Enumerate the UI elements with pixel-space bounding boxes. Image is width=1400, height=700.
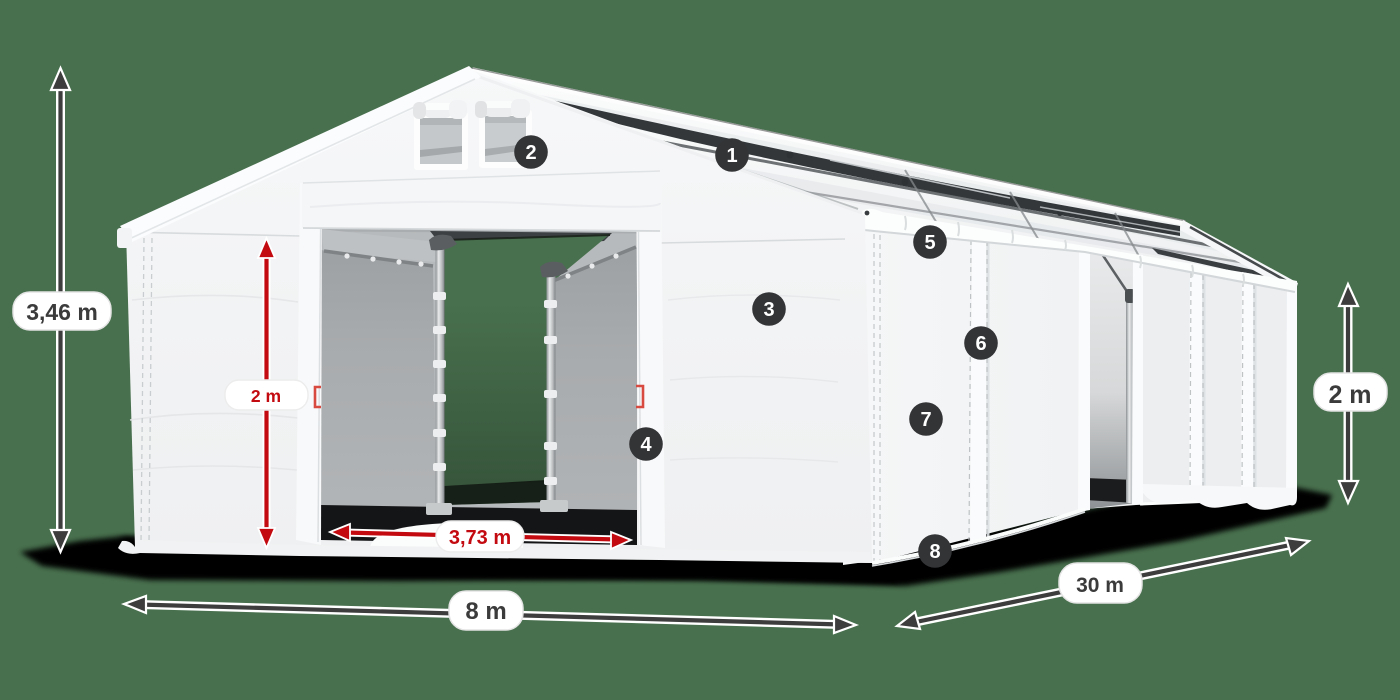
svg-text:6: 6 [975,333,986,355]
svg-text:3,46 m: 3,46 m [26,299,98,325]
svg-text:3,73 m: 3,73 m [449,527,511,549]
svg-text:1: 1 [726,145,737,167]
svg-text:4: 4 [640,434,652,456]
svg-text:8: 8 [929,541,940,563]
svg-text:2 m: 2 m [1328,381,1371,409]
svg-text:30 m: 30 m [1076,574,1124,597]
svg-text:3: 3 [763,299,774,321]
svg-text:5: 5 [924,232,935,254]
svg-text:2 m: 2 m [251,386,281,406]
svg-text:2: 2 [525,142,536,164]
svg-text:8 m: 8 m [465,598,506,625]
svg-text:7: 7 [920,409,931,431]
